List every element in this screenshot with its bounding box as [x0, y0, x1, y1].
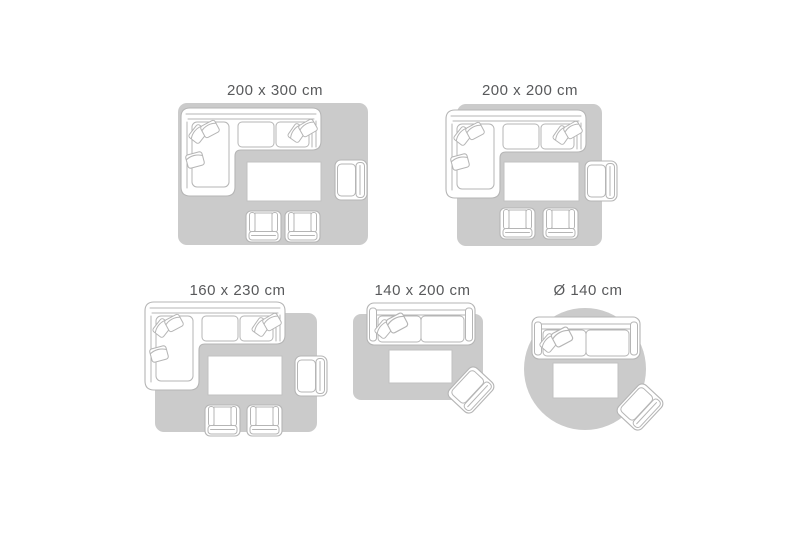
rug-scene-round-140: Ø 140 cm [508, 282, 668, 452]
armchair-icon [295, 356, 327, 396]
rug-scene-140x200: 140 x 200 cm [345, 282, 500, 452]
rug-scene-160x230: 160 x 230 cm [140, 282, 335, 452]
rug-size-label: 140 x 200 cm [345, 282, 500, 300]
rug-layout-illustration [345, 300, 500, 452]
coffee-table-icon [208, 356, 282, 395]
small-armchair-icon [500, 208, 535, 239]
sofa-icon [367, 303, 475, 345]
small-armchair-icon [247, 405, 282, 436]
small-armchair-icon [246, 211, 281, 242]
rug-size-label: 160 x 230 cm [140, 282, 335, 300]
rug-layout-illustration [435, 100, 625, 252]
rug-size-label: 200 x 300 cm [160, 82, 390, 100]
rug-size-label: 200 x 200 cm [435, 82, 625, 100]
rug-layout-illustration [508, 300, 668, 452]
coffee-table-icon [247, 162, 321, 201]
rug-size-guide: 200 x 300 cm 200 x 200 cm 160 x 230 cm [0, 0, 800, 533]
small-armchair-icon [205, 405, 240, 436]
small-armchair-icon [285, 211, 320, 242]
coffee-table-icon [504, 162, 579, 201]
sofa-icon [532, 317, 640, 359]
rug-layout-illustration [140, 300, 335, 452]
coffee-table-icon [389, 350, 452, 383]
rug-scene-200x300: 200 x 300 cm [160, 82, 390, 252]
rug-scene-200x200: 200 x 200 cm [435, 82, 625, 252]
rug-size-label: Ø 140 cm [508, 282, 668, 300]
armchair-icon [585, 161, 617, 201]
coffee-table-icon [553, 363, 618, 398]
small-armchair-icon [543, 208, 578, 239]
rug-layout-illustration [160, 100, 390, 252]
armchair-icon [335, 160, 367, 200]
